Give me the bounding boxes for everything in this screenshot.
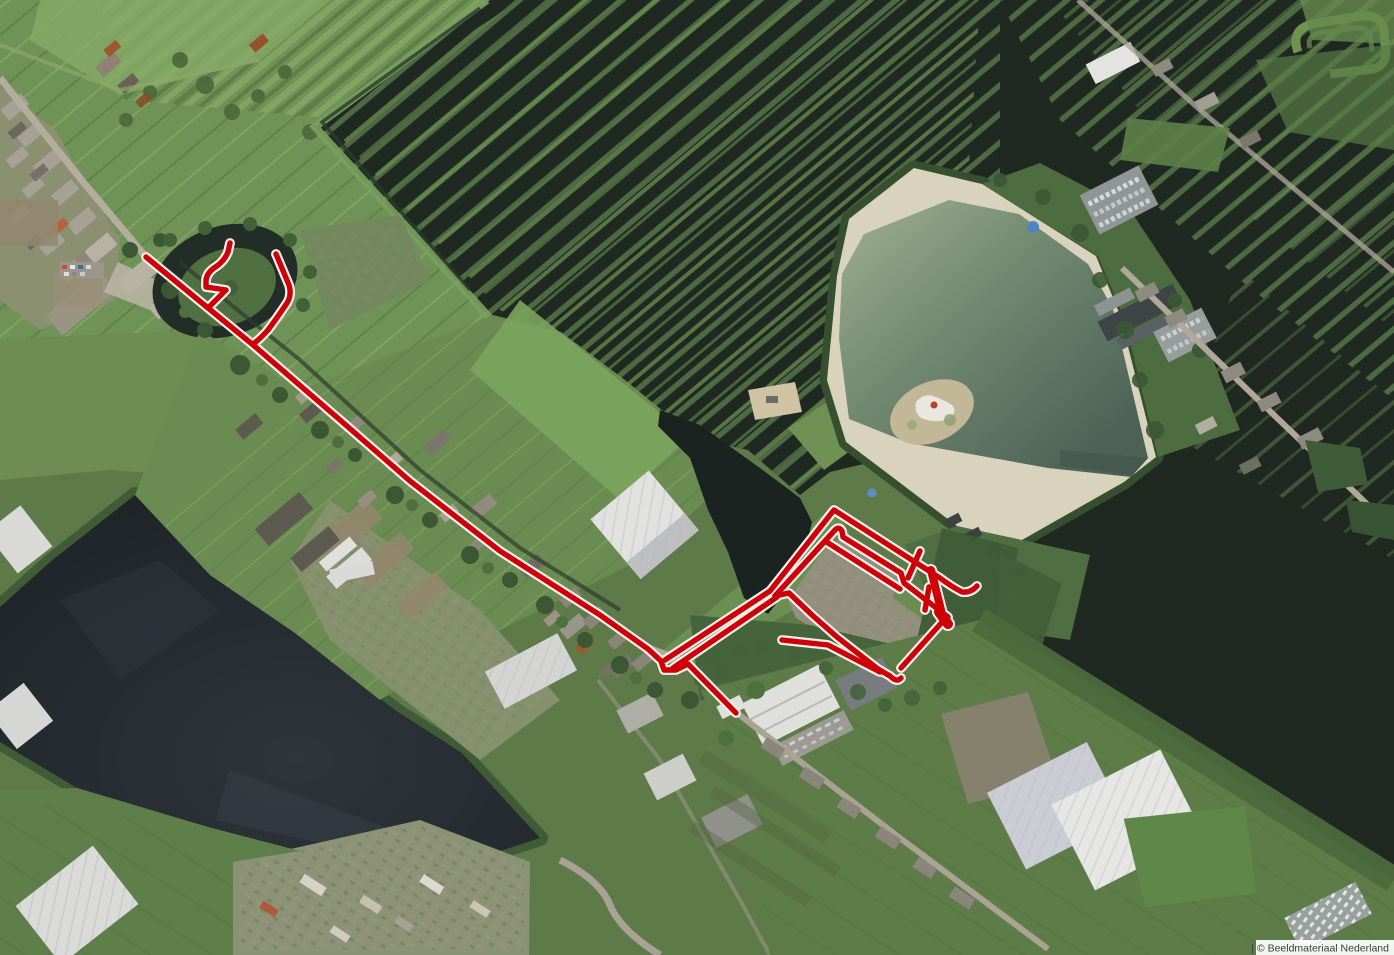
svg-text:| © Beeldmateriaal Nederland: | © Beeldmateriaal Nederland	[1251, 943, 1389, 955]
